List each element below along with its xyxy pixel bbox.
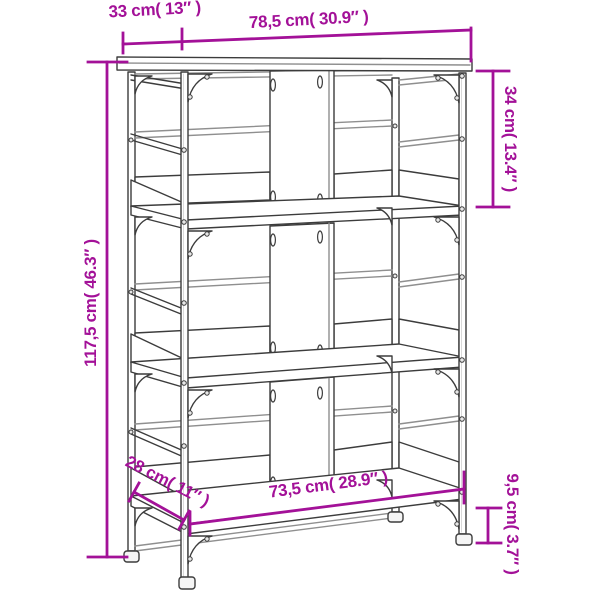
leg-back-right xyxy=(392,78,399,512)
bookshelf-drawing xyxy=(117,57,472,589)
center-divider xyxy=(270,70,334,497)
top-panel xyxy=(117,57,472,71)
dim-label-foot-height: 9,5 cm( 3.7″ ) xyxy=(503,473,522,574)
dim-label-top-depth: 33 cm( 13″ ) xyxy=(108,0,201,21)
dim-label-total-height: 117,5 cm( 46.3″ ) xyxy=(81,239,100,367)
dim-foot-height xyxy=(477,508,501,543)
dim-label-width: 78,5 cm( 30.9″ ) xyxy=(249,7,369,32)
dim-top-depth-and-width xyxy=(123,28,471,61)
diagram-canvas: 33 cm( 13″ ) 78,5 cm( 30.9″ ) 117,5 cm( … xyxy=(0,0,600,600)
leg-front-right xyxy=(459,73,466,534)
dim-label-upper-height: 34 cm( 13.4″ ) xyxy=(501,86,520,192)
dimension-diagram: 33 cm( 13″ ) 78,5 cm( 30.9″ ) 117,5 cm( … xyxy=(0,0,600,600)
